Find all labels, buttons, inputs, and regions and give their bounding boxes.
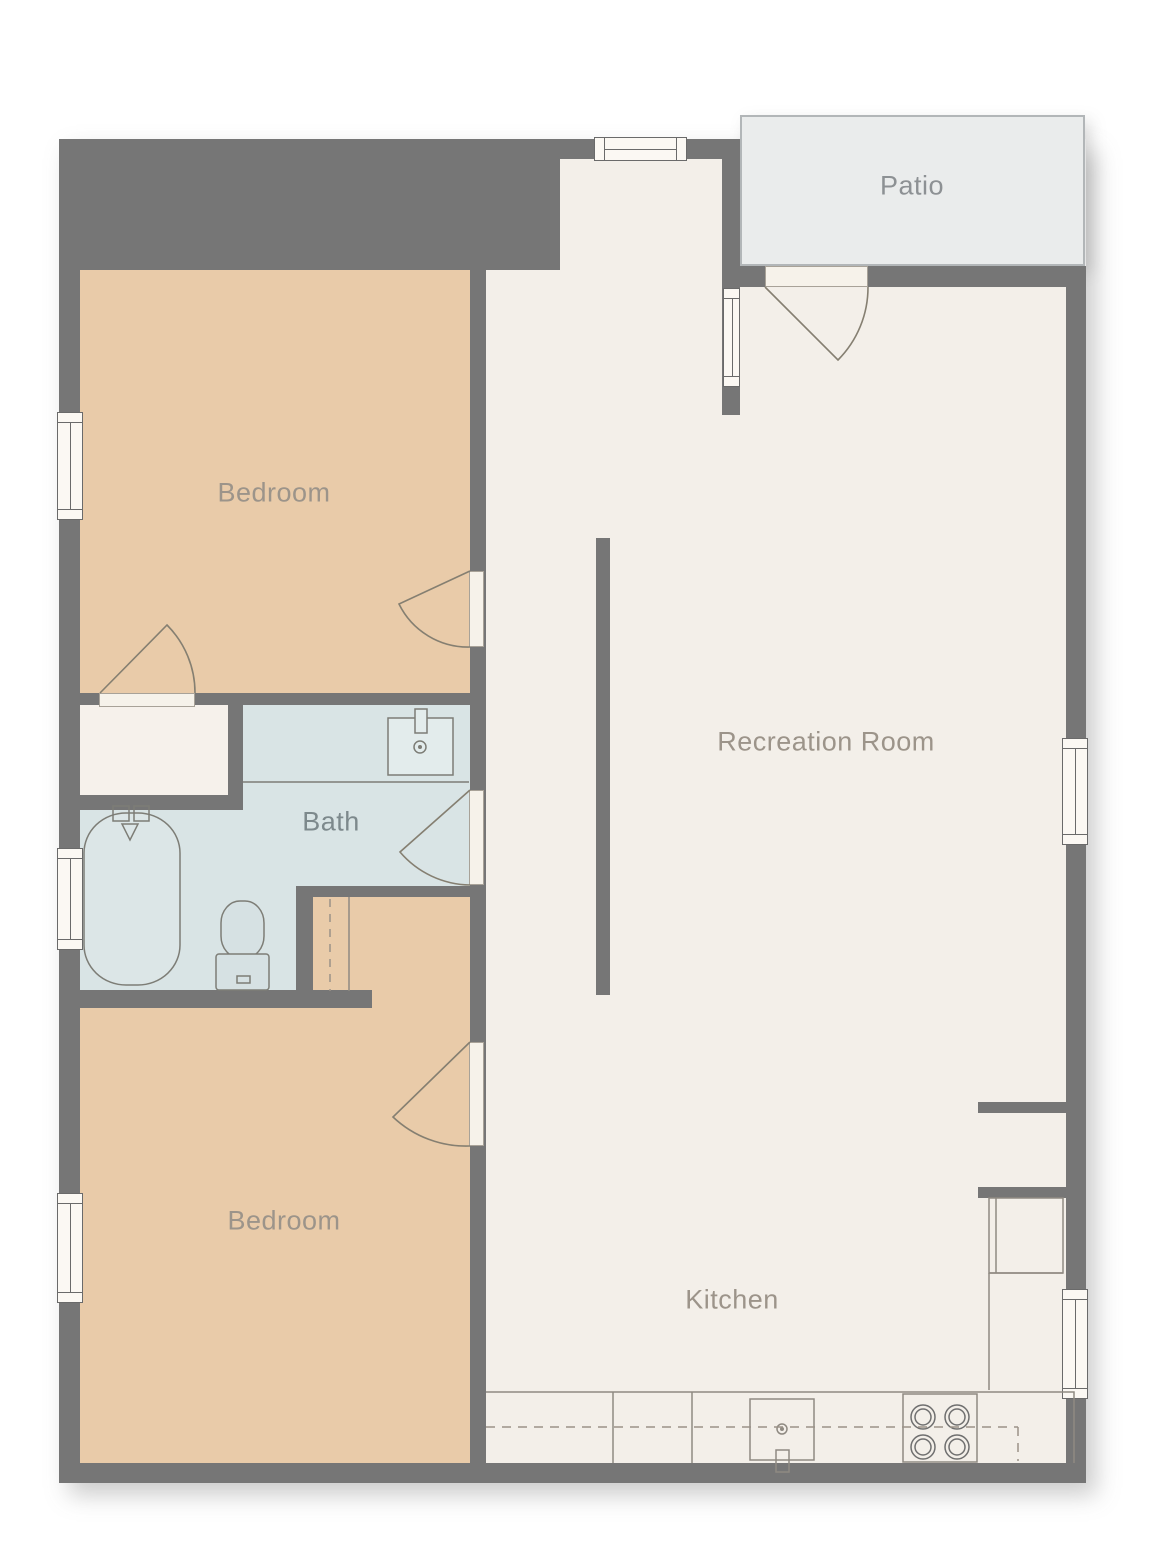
kitchen-sink-faucet bbox=[776, 1450, 789, 1472]
door-swing-bedroom-top bbox=[399, 571, 470, 647]
door-swing-bath bbox=[400, 790, 470, 885]
kitchen-pantry-outline bbox=[989, 1273, 1063, 1390]
label-bedroom-bottom: Bedroom bbox=[227, 1206, 340, 1237]
toilet-tank bbox=[216, 954, 269, 990]
label-bedroom-top: Bedroom bbox=[217, 478, 330, 509]
bathtub bbox=[84, 813, 180, 985]
fixtures-overlay bbox=[0, 0, 1176, 1542]
door-swing-bedroom-bottom bbox=[393, 1042, 470, 1146]
kitchen-tall-cabinet bbox=[989, 1198, 1063, 1273]
door-swing-patio bbox=[765, 287, 868, 360]
label-recreation-room: Recreation Room bbox=[717, 727, 935, 758]
floor-plan: Bedroom Recreation Room Bath Bedroom Kit… bbox=[0, 0, 1176, 1542]
toilet-bowl bbox=[221, 901, 264, 958]
bath-sink-drain-dot bbox=[418, 745, 422, 749]
label-patio: Patio bbox=[880, 171, 944, 202]
kitchen-layout-dashed bbox=[486, 1427, 1018, 1461]
bath-sink-faucet bbox=[415, 709, 427, 733]
label-kitchen: Kitchen bbox=[685, 1285, 779, 1316]
stove-burners bbox=[911, 1405, 969, 1459]
label-bath: Bath bbox=[302, 807, 360, 838]
stove bbox=[903, 1394, 977, 1462]
door-swing-bedroom-top-closet bbox=[100, 625, 195, 693]
